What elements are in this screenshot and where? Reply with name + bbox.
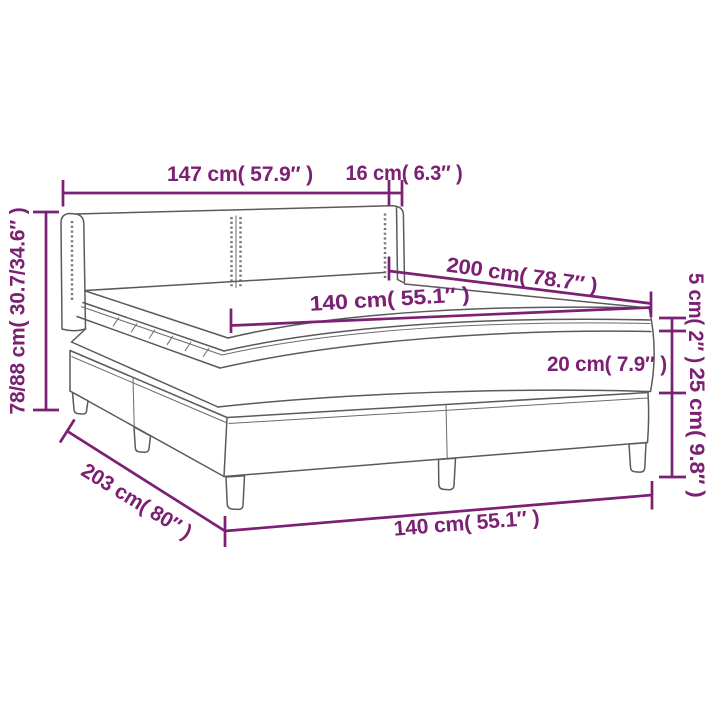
base-left-rim xyxy=(72,357,227,423)
leg-front-middle xyxy=(439,458,456,490)
mattress-left-bottom-edge xyxy=(72,342,219,407)
base-near-corner xyxy=(224,418,227,477)
leg-front-corner xyxy=(226,476,245,510)
base-front-rim xyxy=(229,398,649,424)
label-headboard-width: 147 cm( 57.9″ ) xyxy=(167,163,313,186)
leg-mid-left xyxy=(134,427,151,452)
dim-line-right-heights xyxy=(659,318,686,477)
label-overall-height: 78/88 cm( 30.7/34.6″ ) xyxy=(7,208,30,415)
leg-front-right xyxy=(629,443,646,472)
base-left-top-edge xyxy=(70,351,227,418)
mattress-left-top-edge xyxy=(86,291,229,338)
base-front-split xyxy=(446,405,447,459)
dim-line-overall-height xyxy=(33,212,59,410)
label-base-height: 25 cm( 9.8″ ) xyxy=(685,368,708,498)
base-front-bottom-edge xyxy=(224,443,648,477)
dimension-diagram: 147 cm( 57.9″ ) 16 cm( 6.3″ ) 78/88 cm( … xyxy=(0,0,720,720)
dimension-labels: 147 cm( 57.9″ ) 16 cm( 6.3″ ) 78/88 cm( … xyxy=(7,162,709,544)
label-mattress-height: 20 cm( 7.9″ ) xyxy=(547,353,667,376)
topper-left-piping-b xyxy=(81,307,222,356)
label-base-width: 140 cm( 55.1″ ) xyxy=(393,506,540,540)
diagram-svg: 147 cm( 57.9″ ) 16 cm( 6.3″ ) 78/88 cm( … xyxy=(0,0,720,720)
label-topper-height: 5 cm( 2″ ) xyxy=(684,273,707,363)
headboard-top-edge xyxy=(76,206,391,214)
leg-back-left xyxy=(73,393,89,415)
base-front-top-edge xyxy=(227,393,648,418)
base-left-split xyxy=(133,378,134,427)
base-right-end xyxy=(648,393,649,443)
mattress-back-edge xyxy=(86,273,385,291)
stitch-marks xyxy=(113,317,209,357)
label-headboard-side-depth: 16 cm( 6.3″ ) xyxy=(346,162,463,185)
